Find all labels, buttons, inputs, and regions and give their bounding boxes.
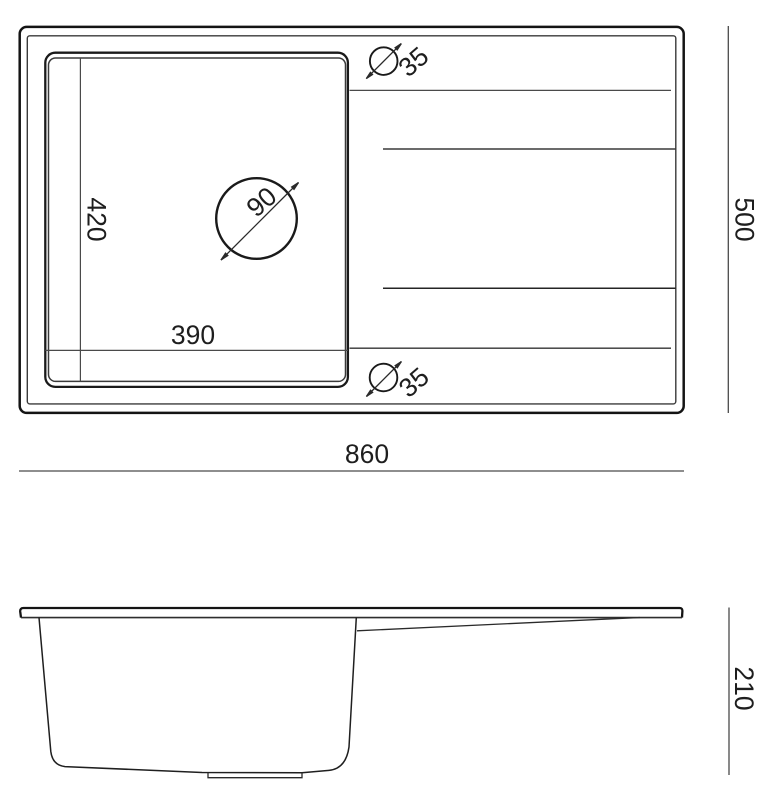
svg-text:860: 860 [345,439,389,469]
svg-text:390: 390 [171,320,215,350]
svg-text:500: 500 [729,197,759,241]
svg-text:420: 420 [82,197,112,241]
svg-text:210: 210 [729,666,759,710]
